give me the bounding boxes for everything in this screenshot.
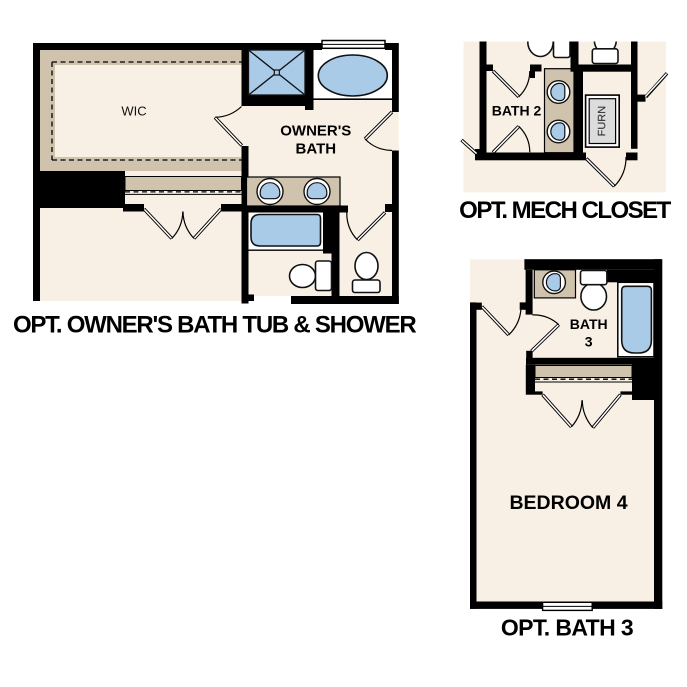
svg-text:OPT. MECH CLOSET: OPT. MECH CLOSET	[459, 197, 672, 224]
svg-text:OPT. BATH 3: OPT. BATH 3	[501, 615, 633, 641]
svg-text:3: 3	[585, 334, 593, 350]
svg-text:BATH: BATH	[296, 140, 337, 157]
svg-text:FURN: FURN	[596, 106, 608, 137]
svg-text:BATH: BATH	[570, 316, 608, 332]
svg-text:OWNER'S: OWNER'S	[280, 123, 351, 140]
svg-text:OPT. OWNER'S BATH TUB & SHOWER: OPT. OWNER'S BATH TUB & SHOWER	[13, 312, 416, 339]
svg-text:BATH 2: BATH 2	[492, 103, 542, 119]
svg-text:WIC: WIC	[121, 104, 146, 119]
svg-text:BEDROOM 4: BEDROOM 4	[509, 492, 627, 514]
